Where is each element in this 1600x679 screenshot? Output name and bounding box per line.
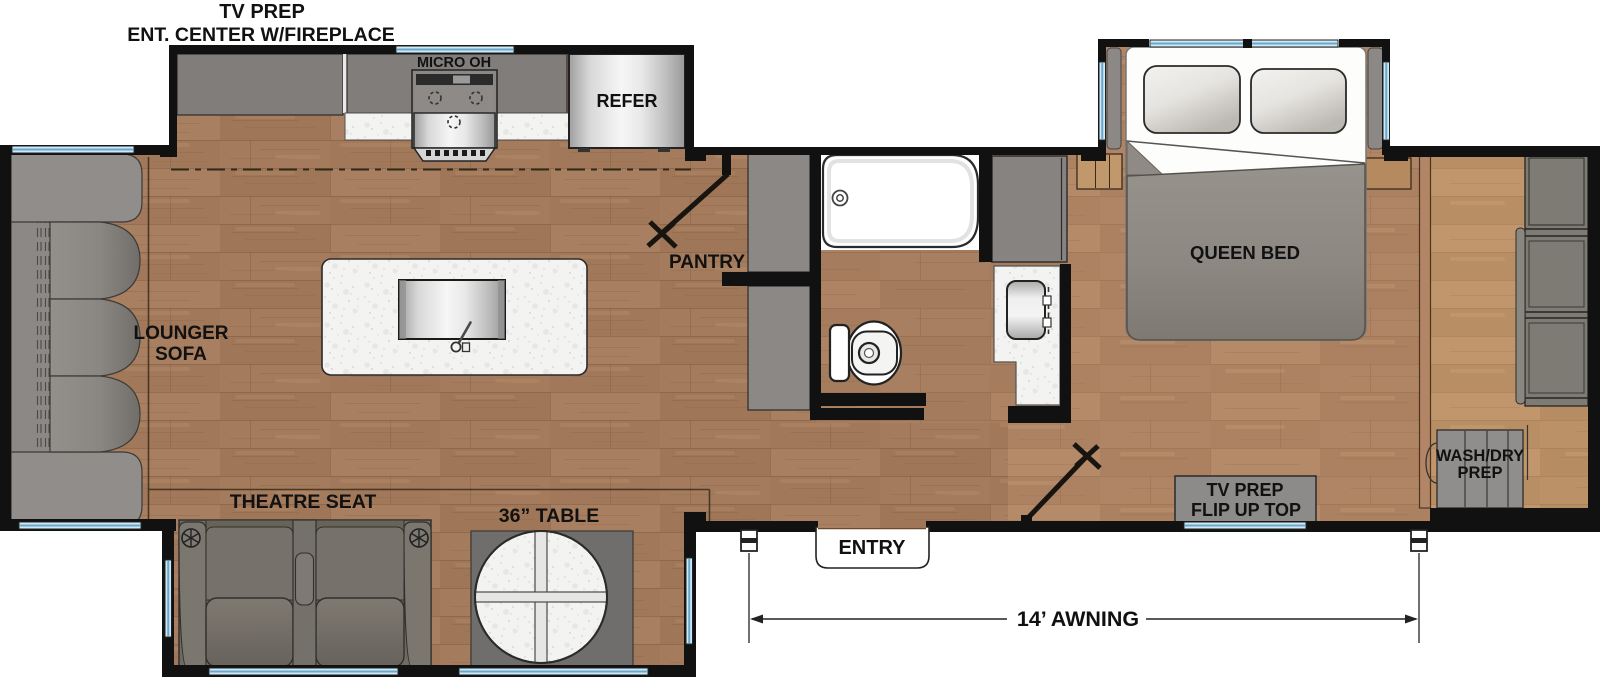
svg-text:ENTRY: ENTRY — [838, 537, 906, 559]
svg-text:QUEEN BED: QUEEN BED — [1190, 242, 1300, 263]
svg-text:MICRO OH: MICRO OH — [417, 55, 491, 71]
svg-text:TV PREP: TV PREP — [219, 1, 305, 23]
svg-text:FLIP UP TOP: FLIP UP TOP — [1191, 500, 1301, 520]
svg-text:SOFA: SOFA — [155, 344, 207, 365]
svg-text:14’ AWNING: 14’ AWNING — [1017, 607, 1139, 631]
svg-text:REFER: REFER — [596, 91, 657, 111]
svg-text:PREP: PREP — [1458, 464, 1503, 482]
svg-text:THEATRE SEAT: THEATRE SEAT — [230, 491, 377, 513]
svg-text:ENT. CENTER W/FIREPLACE: ENT. CENTER W/FIREPLACE — [127, 24, 395, 46]
svg-text:WASH/DRY: WASH/DRY — [1436, 447, 1524, 465]
svg-text:TV PREP: TV PREP — [1206, 480, 1283, 500]
svg-text:PANTRY: PANTRY — [669, 252, 745, 273]
svg-text:36” TABLE: 36” TABLE — [499, 505, 599, 527]
svg-text:LOUNGER: LOUNGER — [134, 323, 229, 344]
